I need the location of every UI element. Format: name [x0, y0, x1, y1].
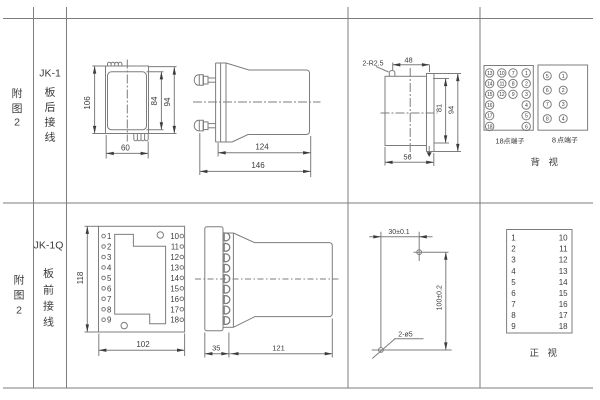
svg-text:1: 1 — [107, 232, 111, 241]
svg-text:18: 18 — [495, 137, 503, 146]
svg-text:16: 16 — [487, 103, 492, 109]
svg-text:7: 7 — [511, 300, 516, 309]
svg-text:124: 124 — [255, 143, 269, 152]
svg-text:11: 11 — [559, 245, 568, 254]
svg-text:2: 2 — [511, 245, 516, 254]
svg-text:12: 12 — [499, 92, 504, 98]
svg-text:106: 106 — [83, 96, 92, 110]
svg-text:2: 2 — [14, 117, 20, 129]
svg-text:10: 10 — [170, 232, 179, 241]
svg-text:17: 17 — [559, 311, 568, 320]
svg-text:11: 11 — [171, 243, 179, 252]
svg-text:9: 9 — [107, 316, 111, 325]
svg-text:3: 3 — [511, 256, 516, 265]
svg-text:10: 10 — [499, 71, 504, 77]
svg-text:JK-1: JK-1 — [39, 68, 61, 80]
svg-text:56: 56 — [403, 153, 411, 162]
svg-text:102: 102 — [136, 340, 150, 349]
svg-text:16: 16 — [559, 300, 568, 309]
svg-text:60: 60 — [121, 143, 130, 152]
svg-text:4: 4 — [525, 103, 528, 109]
svg-text:13: 13 — [170, 263, 179, 272]
svg-text:11: 11 — [500, 82, 505, 88]
svg-text:16: 16 — [170, 295, 179, 304]
svg-text:2: 2 — [107, 243, 111, 252]
svg-text:100±0.2: 100±0.2 — [436, 285, 443, 310]
svg-text:94: 94 — [447, 106, 456, 114]
svg-text:146: 146 — [251, 161, 265, 170]
svg-text:7: 7 — [107, 295, 111, 304]
svg-text:8: 8 — [512, 82, 515, 88]
svg-text:81: 81 — [434, 104, 443, 112]
svg-text:15: 15 — [170, 284, 179, 293]
svg-text:2: 2 — [16, 305, 22, 317]
svg-text:121: 121 — [272, 344, 285, 353]
svg-text:5: 5 — [107, 274, 112, 283]
svg-text:18: 18 — [170, 316, 179, 325]
svg-text:13: 13 — [487, 71, 492, 77]
svg-text:8: 8 — [552, 136, 556, 145]
svg-text:8: 8 — [546, 117, 549, 123]
svg-text:14: 14 — [487, 82, 492, 88]
svg-text:2: 2 — [525, 82, 528, 88]
svg-text:2-ø5: 2-ø5 — [398, 332, 413, 339]
svg-text:8: 8 — [107, 305, 111, 314]
svg-text:4: 4 — [107, 263, 112, 272]
svg-text:84: 84 — [150, 96, 159, 105]
svg-text:4: 4 — [562, 117, 565, 123]
svg-text:14: 14 — [170, 274, 179, 283]
svg-text:14: 14 — [559, 278, 568, 287]
svg-text:7: 7 — [546, 102, 549, 108]
svg-text:13: 13 — [559, 267, 568, 276]
svg-text:4: 4 — [511, 267, 516, 276]
svg-text:17: 17 — [487, 114, 492, 120]
svg-text:30±0.1: 30±0.1 — [388, 229, 409, 236]
svg-text:8: 8 — [511, 311, 516, 320]
svg-text:2-R2.5: 2-R2.5 — [362, 60, 383, 67]
svg-text:18: 18 — [559, 322, 568, 331]
svg-text:3: 3 — [107, 253, 111, 262]
svg-text:15: 15 — [559, 289, 568, 298]
svg-text:6: 6 — [525, 124, 528, 130]
svg-text:15: 15 — [487, 92, 492, 98]
svg-text:6: 6 — [107, 284, 111, 293]
svg-text:5: 5 — [525, 114, 528, 120]
svg-text:94: 94 — [163, 97, 172, 106]
svg-text:3: 3 — [525, 92, 528, 98]
svg-text:5: 5 — [546, 74, 549, 80]
svg-text:35: 35 — [212, 344, 220, 353]
svg-text:6: 6 — [511, 289, 516, 298]
svg-text:10: 10 — [559, 234, 568, 243]
svg-text:3: 3 — [562, 102, 565, 108]
svg-text:7: 7 — [512, 71, 515, 77]
svg-text:5: 5 — [511, 278, 516, 287]
svg-text:9: 9 — [512, 92, 515, 98]
svg-text:2: 2 — [562, 88, 565, 94]
svg-text:12: 12 — [559, 256, 568, 265]
svg-text:17: 17 — [170, 305, 179, 314]
svg-text:12: 12 — [170, 253, 179, 262]
svg-text:1: 1 — [511, 234, 516, 243]
svg-text:JK-1Q: JK-1Q — [34, 240, 64, 252]
svg-text:1: 1 — [525, 71, 528, 77]
svg-text:18: 18 — [487, 124, 492, 130]
svg-text:6: 6 — [546, 88, 549, 94]
svg-text:48: 48 — [404, 55, 412, 64]
svg-text:1: 1 — [562, 74, 565, 80]
svg-text:9: 9 — [511, 322, 516, 331]
svg-text:118: 118 — [76, 271, 85, 284]
